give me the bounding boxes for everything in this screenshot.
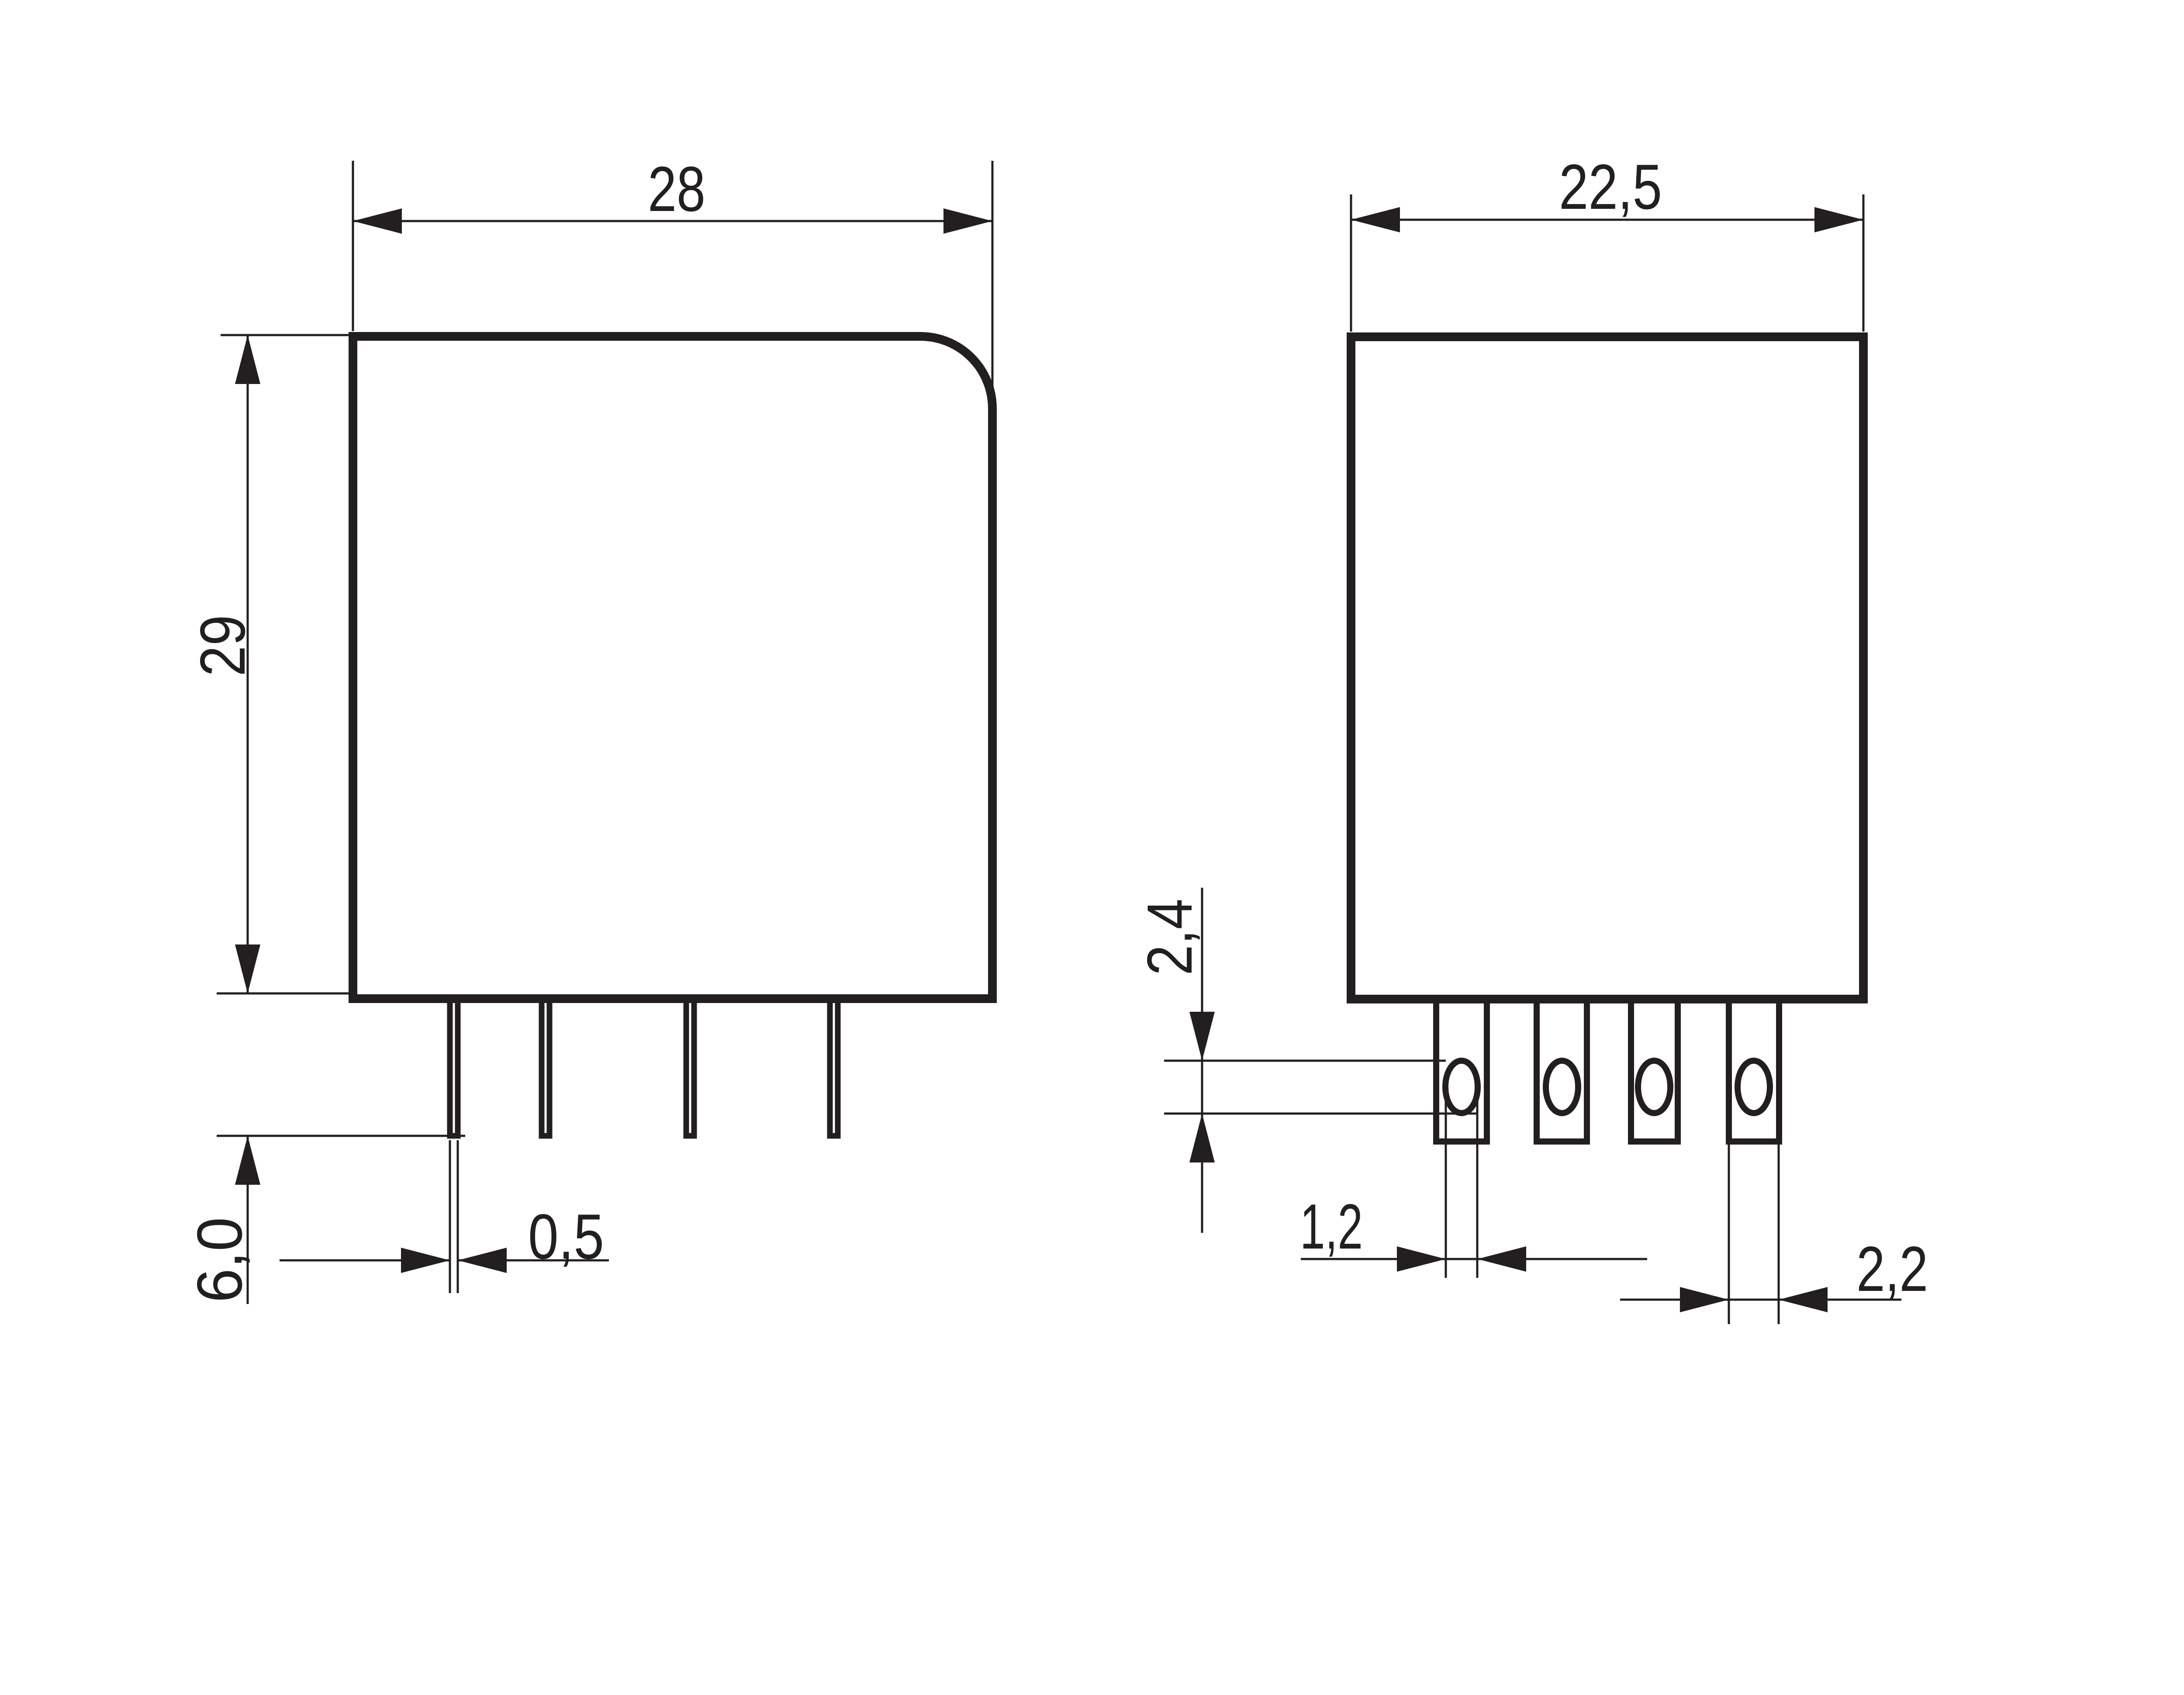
svg-text:2,2: 2,2 xyxy=(1856,1233,1928,1304)
svg-text:1,2: 1,2 xyxy=(1300,1191,1363,1262)
svg-text:28: 28 xyxy=(648,153,705,225)
svg-text:6,0: 6,0 xyxy=(184,1217,255,1303)
svg-text:2,4: 2,4 xyxy=(1134,899,1205,975)
svg-text:29: 29 xyxy=(187,615,258,677)
svg-text:0,5: 0,5 xyxy=(528,1201,604,1272)
svg-text:22,5: 22,5 xyxy=(1559,151,1662,222)
